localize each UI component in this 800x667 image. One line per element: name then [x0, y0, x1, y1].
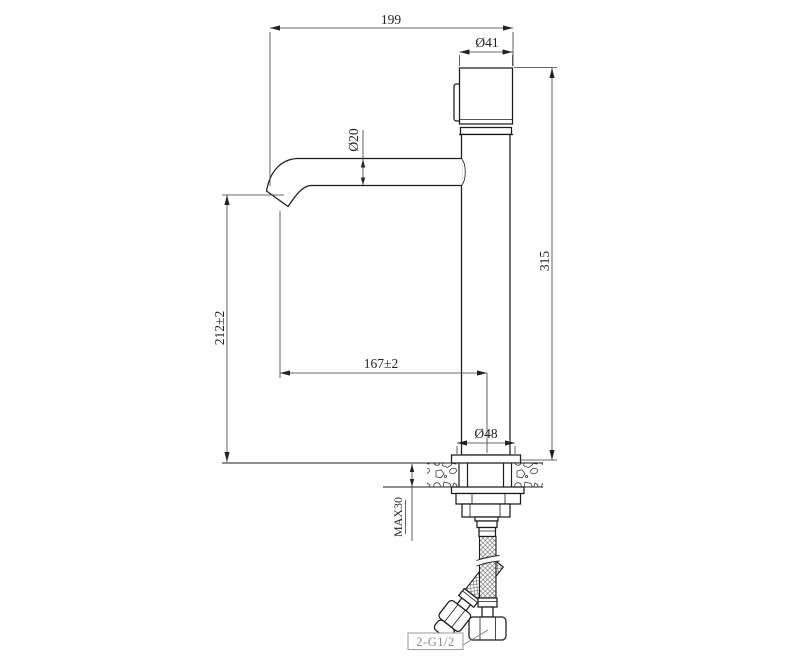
base-flange [452, 455, 521, 463]
faucet-body-column [462, 135, 511, 456]
dim-spout-height-text: 212±2 [212, 311, 227, 345]
handle-collar [461, 128, 512, 135]
dimension-overall-height: 315 [514, 68, 557, 461]
dim-overall-height-text: 315 [537, 251, 552, 272]
dimension-spout-reach: 167±2 [280, 211, 487, 453]
hose-connector-hex [477, 521, 497, 528]
counter-hatch-left [427, 464, 459, 487]
dim-overall-width-text: 199 [381, 12, 402, 27]
countertop-section [222, 463, 543, 487]
spout [267, 159, 466, 207]
dim-max-deck-thickness-text: MAX30 [391, 497, 405, 537]
thread-spec-text: 2-G1/2 [416, 635, 454, 649]
washer-plate [452, 487, 525, 494]
hose-end-nut-straight [469, 617, 506, 640]
dimension-spout-height: 212±2 [212, 195, 284, 462]
technical-drawing-canvas: 199 Ø41 Ø20 315 212±2 [0, 0, 800, 667]
dim-base-diameter-text: Ø48 [474, 426, 497, 441]
dim-spout-reach-text: 167±2 [364, 356, 398, 371]
dim-handle-diameter-text: Ø41 [475, 35, 498, 50]
lock-nut [456, 494, 521, 505]
dimension-handle-diameter: Ø41 [460, 35, 513, 66]
mounting-hardware [452, 487, 525, 537]
dimension-max-deck-thickness: MAX30 [391, 464, 414, 541]
faucet-dimension-drawing: 199 Ø41 Ø20 315 212±2 [0, 0, 800, 667]
counter-hatch-right [512, 464, 543, 487]
handle-cap [460, 68, 513, 124]
dim-spout-diameter-text: Ø20 [346, 128, 361, 151]
